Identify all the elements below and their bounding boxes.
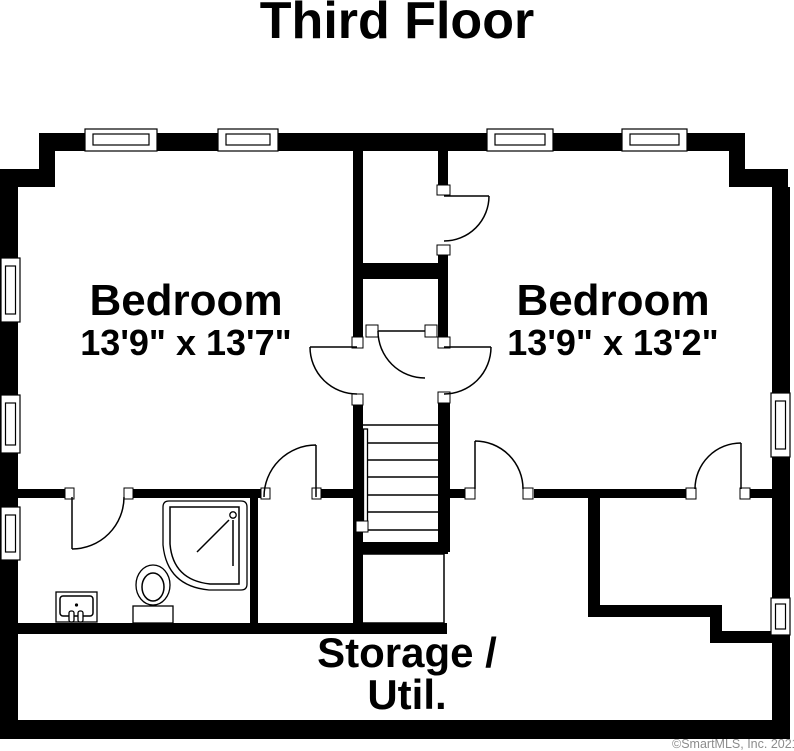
wall-right: [772, 187, 790, 739]
wall-bath-right: [250, 489, 258, 634]
jamb: [740, 488, 750, 499]
jamb: [465, 488, 475, 499]
stair-newel: [356, 521, 368, 532]
sink-vanity: [56, 592, 97, 622]
door-arc-bedroom-right-entry: [475, 441, 523, 489]
window: [1, 507, 20, 560]
wall-closet-center-top: [353, 263, 448, 279]
wall-bath-top-a: [18, 489, 67, 498]
shower: [163, 501, 247, 590]
room-name-line1: Storage /: [277, 632, 537, 674]
window: [1, 395, 20, 453]
door-arc-bathroom: [72, 497, 124, 549]
wall-hall-right-upper: [438, 150, 448, 185]
wall-bath-top-b: [132, 489, 263, 498]
room-name-line2: Util.: [277, 674, 537, 716]
window: [218, 129, 278, 151]
window: [487, 129, 553, 151]
stairwell-void: [360, 554, 444, 623]
wall-stair-cap: [360, 542, 448, 554]
bathroom-fixtures: [56, 501, 247, 623]
wall-storage-top-c: [749, 489, 772, 498]
jamb: [437, 245, 450, 255]
jamb: [437, 185, 450, 195]
jamb: [261, 488, 270, 499]
toilet-tank: [133, 606, 173, 623]
wall-hall-left: [353, 150, 363, 337]
faucet: [78, 611, 83, 622]
wall-stair-right: [438, 394, 450, 552]
jamb: [523, 488, 533, 499]
window: [771, 598, 790, 635]
room-label-bedroom-right: Bedroom 13'9" x 13'2": [483, 279, 743, 361]
page-title: Third Floor: [0, 0, 794, 47]
wall-closet-right-left: [588, 497, 600, 617]
window: [85, 129, 157, 151]
wall-stair-left: [353, 394, 363, 633]
jamb: [686, 488, 696, 499]
room-label-bedroom-left: Bedroom 13'9" x 13'7": [56, 279, 316, 361]
door-arc-center-closet: [378, 331, 425, 378]
room-dimensions: 13'9" x 13'7": [56, 325, 316, 361]
floor-plan: Third Floor Bedroom 13'9" x 13'7" Bedroo…: [0, 0, 794, 751]
wall-closet-right-bottom: [588, 605, 722, 617]
jamb: [366, 325, 378, 337]
stair-railing: [364, 429, 368, 523]
toilet: [133, 565, 173, 623]
mls-watermark: ©SmartMLS, Inc. 2021: [672, 737, 794, 751]
jamb: [352, 394, 363, 405]
wall-top-left-bar: [0, 169, 55, 187]
sink-drain: [75, 603, 78, 606]
wall-top-right-bar: [729, 169, 788, 187]
jamb: [425, 325, 437, 337]
room-dimensions: 13'9" x 13'2": [483, 325, 743, 361]
room-name: Bedroom: [483, 279, 743, 323]
room-name: Bedroom: [56, 279, 316, 323]
door-arc-hall-to-bedroom-right: [444, 196, 489, 241]
door-arc-landing-to-bedroom-left: [310, 347, 357, 394]
room-label-storage-util: Storage / Util.: [277, 632, 537, 716]
door-arc-closet-right: [695, 443, 741, 489]
stair-treads: [363, 425, 438, 530]
windows: [1, 129, 790, 635]
shower-head: [230, 512, 236, 518]
wall-storage-top-b: [534, 489, 687, 498]
wall-storage-top-a: [448, 489, 466, 498]
faucet: [69, 611, 74, 622]
interior-walls: [18, 150, 790, 643]
window: [771, 393, 790, 457]
door-arc-bedroom-left-entry: [264, 445, 316, 497]
window: [622, 129, 687, 151]
window: [1, 258, 20, 322]
jamb: [124, 488, 133, 499]
stairs: [356, 425, 444, 623]
